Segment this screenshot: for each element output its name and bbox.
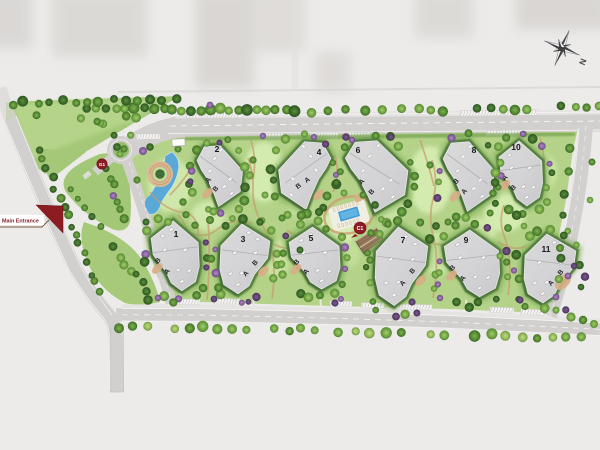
svg-text:C1: C1 bbox=[357, 226, 364, 232]
svg-text:4: 4 bbox=[317, 147, 322, 157]
svg-text:10: 10 bbox=[511, 142, 521, 152]
svg-text:11: 11 bbox=[542, 244, 551, 254]
svg-text:3: 3 bbox=[241, 234, 246, 244]
svg-text:1: 1 bbox=[174, 229, 179, 239]
svg-text:2: 2 bbox=[215, 144, 220, 154]
svg-text:9: 9 bbox=[464, 235, 469, 245]
svg-text:8: 8 bbox=[472, 145, 477, 155]
svg-text:Main Entrance: Main Entrance bbox=[2, 219, 39, 225]
svg-text:G1: G1 bbox=[99, 162, 106, 167]
svg-text:6: 6 bbox=[356, 145, 361, 155]
svg-text:5: 5 bbox=[309, 233, 314, 243]
svg-text:7: 7 bbox=[401, 235, 406, 245]
